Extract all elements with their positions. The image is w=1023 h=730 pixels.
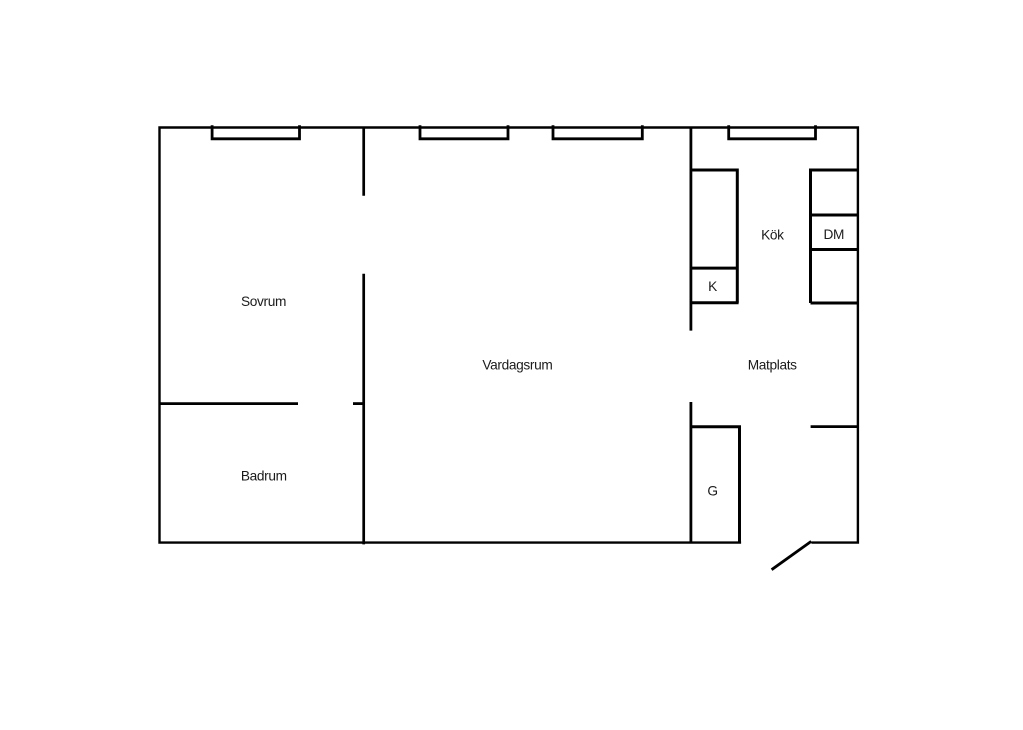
svg-text:Sovrum: Sovrum bbox=[241, 294, 286, 309]
svg-text:Badrum: Badrum bbox=[241, 469, 287, 484]
svg-text:Matplats: Matplats bbox=[748, 358, 797, 373]
svg-text:G: G bbox=[707, 484, 717, 499]
svg-text:Vardagsrum: Vardagsrum bbox=[482, 358, 552, 373]
svg-text:K: K bbox=[708, 279, 717, 294]
svg-text:Kök: Kök bbox=[761, 228, 784, 243]
svg-text:DM: DM bbox=[824, 227, 845, 242]
